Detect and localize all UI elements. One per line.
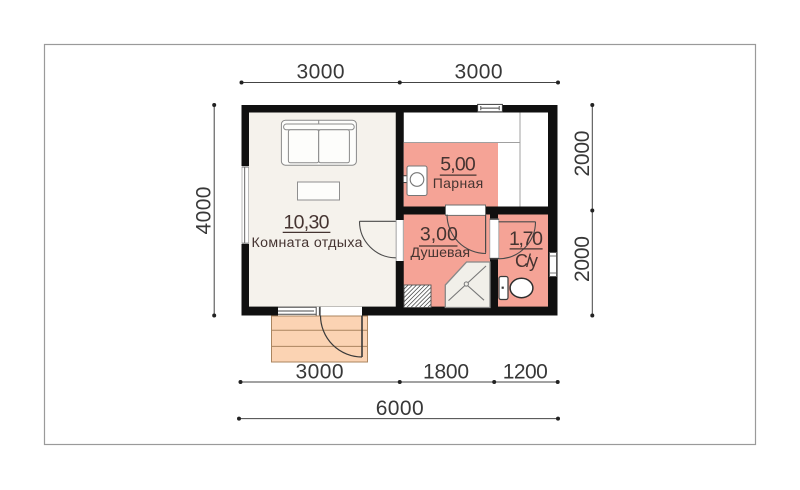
svg-text:Парная: Парная [433, 175, 484, 191]
svg-text:5,00: 5,00 [440, 154, 476, 176]
svg-text:Комната отдыха: Комната отдыха [252, 235, 363, 251]
svg-text:4000: 4000 [193, 187, 216, 235]
svg-text:1200: 1200 [503, 361, 548, 384]
svg-text:6000: 6000 [376, 397, 424, 420]
svg-text:Душевая: Душевая [411, 245, 471, 261]
svg-text:3,00: 3,00 [420, 224, 458, 246]
svg-text:2000: 2000 [571, 236, 594, 282]
svg-text:3000: 3000 [455, 61, 503, 84]
svg-text:С/у: С/у [515, 251, 538, 271]
svg-text:3000: 3000 [297, 61, 345, 84]
svg-text:2000: 2000 [571, 131, 594, 177]
svg-text:10,30: 10,30 [284, 212, 330, 234]
svg-text:1,70: 1,70 [509, 228, 543, 250]
svg-text:3000: 3000 [296, 361, 344, 384]
svg-text:1800: 1800 [423, 361, 469, 384]
